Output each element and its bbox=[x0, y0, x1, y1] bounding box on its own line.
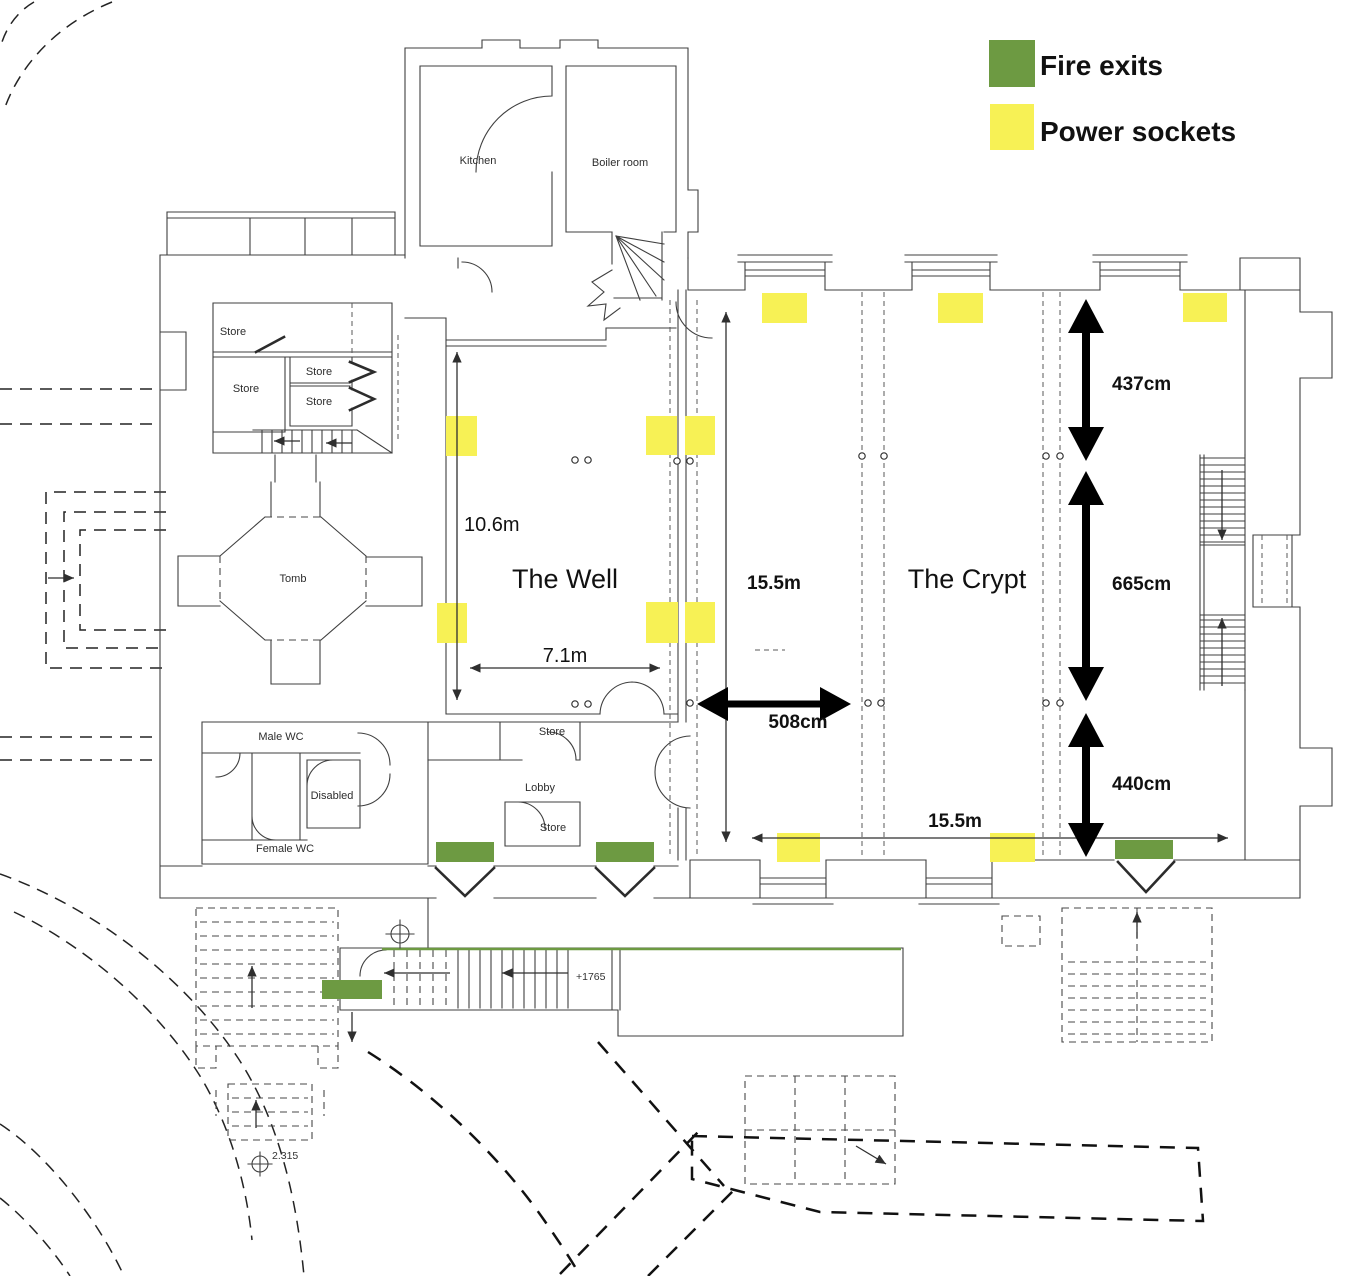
store-nw-left-label: Store bbox=[233, 383, 259, 395]
lobby-label: Lobby bbox=[525, 782, 555, 794]
floor-plan: Kitchen Boiler room Store Store Store St… bbox=[0, 0, 1370, 1276]
long-stair-dashed-treads bbox=[394, 950, 446, 1008]
power-socket-swatch-icon bbox=[990, 104, 1034, 150]
crypt-width-label: 15.5m bbox=[928, 811, 982, 832]
fire-exit-marker bbox=[322, 980, 382, 999]
exit-door-leaves bbox=[436, 862, 1174, 896]
boiler-room-label: Boiler room bbox=[592, 157, 648, 169]
section-437-label: 437cm bbox=[1112, 374, 1171, 395]
datum-label: 2.315 bbox=[272, 1150, 298, 1162]
section-665-label: 665cm bbox=[1112, 574, 1171, 595]
survey-markers bbox=[248, 920, 414, 1176]
section-440-label: 440cm bbox=[1112, 774, 1171, 795]
store-nw-mid-label: Store bbox=[306, 366, 332, 378]
power-socket-marker bbox=[762, 293, 807, 323]
site-dashed-lines bbox=[0, 2, 1212, 1276]
power-socket-marker bbox=[685, 602, 715, 643]
disabled-label: Disabled bbox=[311, 790, 354, 802]
stair-level-label: +1765 bbox=[576, 971, 606, 983]
store-lobby-top-label: Store bbox=[539, 726, 565, 738]
fire-exits-legend-label: Fire exits bbox=[1040, 50, 1163, 81]
well-length-label: 10.6m bbox=[464, 514, 520, 536]
fire-exit-swatch-icon bbox=[989, 40, 1035, 87]
power-socket-marker bbox=[938, 293, 983, 323]
dimension-labels: 10.6m 7.1m 15.5m 15.5m 508cm 437cm 665cm… bbox=[272, 374, 1171, 1162]
crypt-length-label: 15.5m bbox=[747, 573, 801, 594]
spiral-stair bbox=[588, 232, 664, 320]
long-stair bbox=[340, 898, 903, 1036]
power-socket-marker bbox=[446, 416, 477, 456]
the-well-label: The Well bbox=[512, 564, 618, 594]
power-socket-marker bbox=[1183, 293, 1227, 322]
kitchen-label: Kitchen bbox=[460, 155, 497, 167]
well-width-label: 7.1m bbox=[543, 645, 587, 667]
power-socket-marker bbox=[646, 416, 677, 455]
annex-kitchen-boiler bbox=[405, 40, 698, 292]
site-heavy-dashed bbox=[368, 1042, 1203, 1276]
tomb-label: Tomb bbox=[280, 573, 307, 585]
the-crypt-label: The Crypt bbox=[908, 564, 1027, 594]
power-socket-marker bbox=[685, 416, 715, 455]
fire-exit-marker bbox=[1115, 840, 1173, 859]
power-socket-marker bbox=[437, 603, 467, 643]
fire-exit-marker bbox=[596, 842, 654, 862]
fire-exit-markers bbox=[322, 840, 1173, 999]
fire-exit-marker bbox=[436, 842, 494, 862]
store-lobby-bottom-label: Store bbox=[540, 822, 566, 834]
bay-508-label: 508cm bbox=[768, 712, 827, 733]
room-labels: Kitchen Boiler room Store Store Store St… bbox=[220, 155, 1027, 855]
store-nw-top-label: Store bbox=[220, 326, 246, 338]
building-walls bbox=[160, 40, 1332, 1176]
female-wc-label: Female WC bbox=[256, 843, 314, 855]
power-sockets-legend-label: Power sockets bbox=[1040, 116, 1236, 147]
tomb-walls bbox=[178, 455, 422, 684]
store-nw-bottom-label: Store bbox=[306, 396, 332, 408]
male-wc-label: Male WC bbox=[258, 731, 303, 743]
legend: Fire exits Power sockets bbox=[989, 40, 1236, 150]
power-socket-marker bbox=[646, 602, 678, 643]
